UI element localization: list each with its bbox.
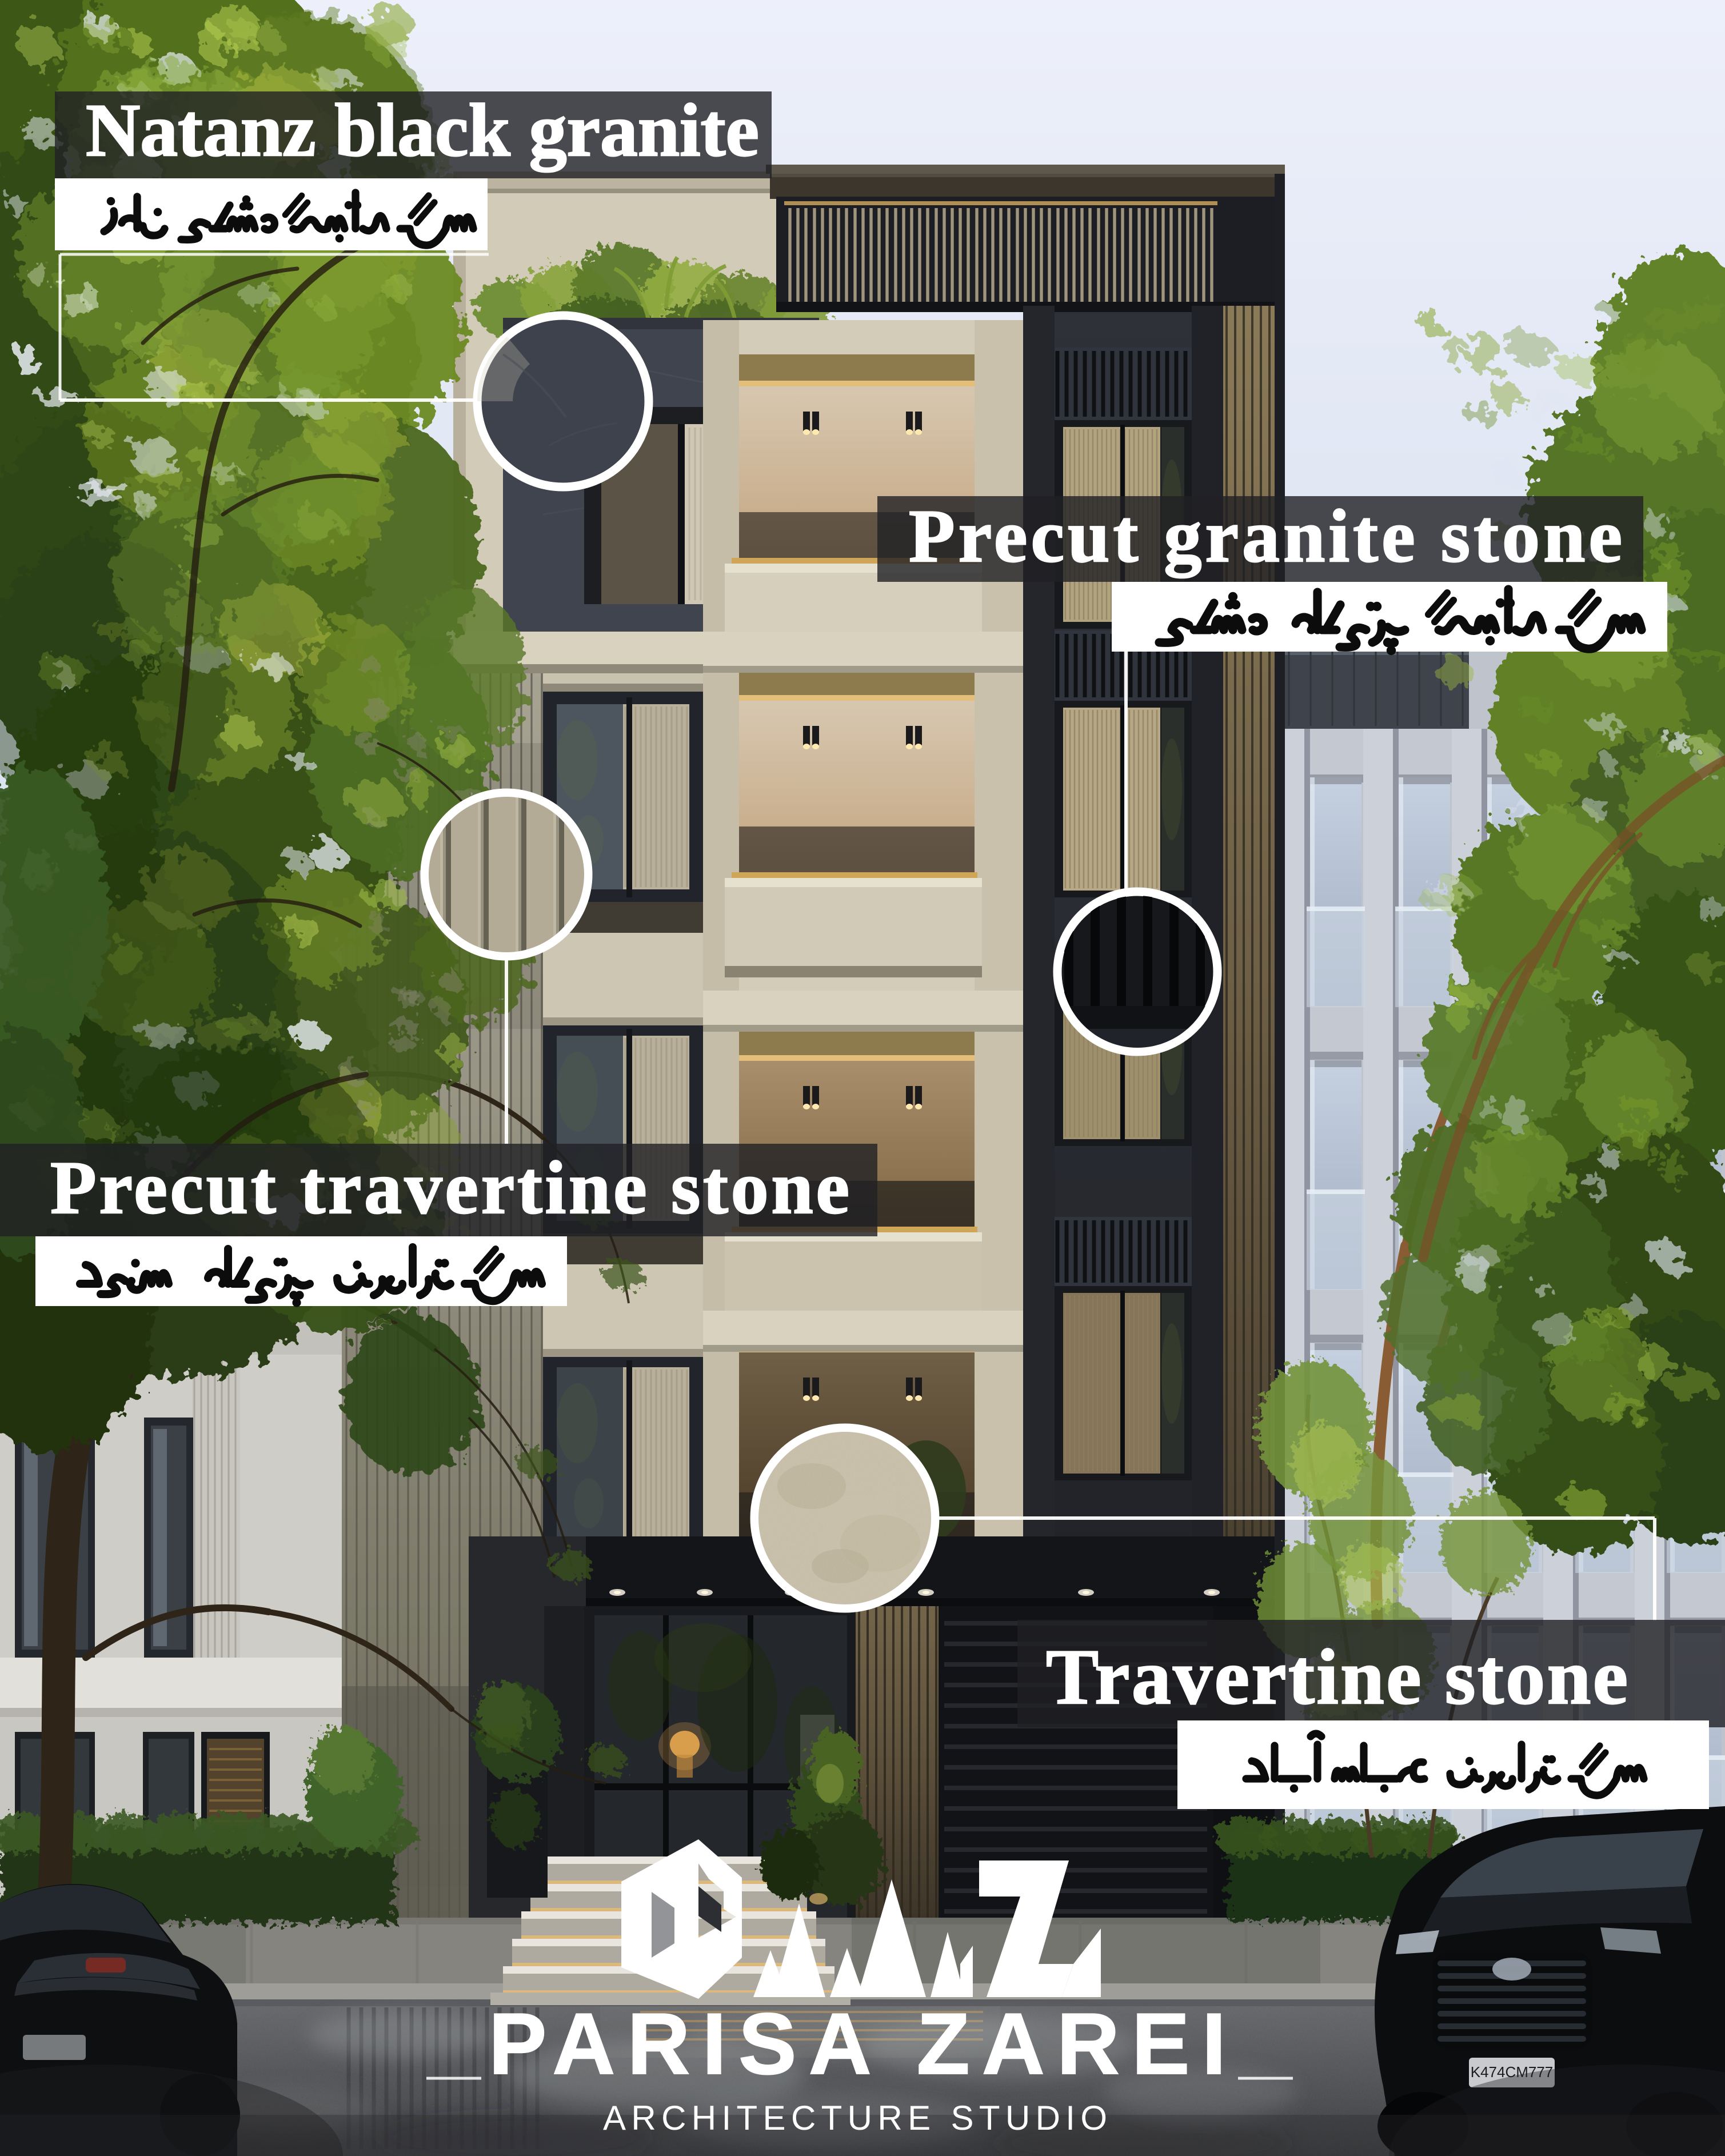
svg-text:ARCHITECTURE STUDIO: ARCHITECTURE STUDIO [603,2099,1117,2137]
svg-text:Precut travertine stone: Precut travertine stone [50,1145,850,1229]
svg-text:PARISA ZAREI: PARISA ZAREI [489,1995,1232,2093]
svg-text:Natanz black granite: Natanz black granite [86,88,760,172]
svg-text:Travertine stone: Travertine stone [1046,1633,1629,1720]
svg-text:Precut granite stone: Precut granite stone [909,494,1623,578]
